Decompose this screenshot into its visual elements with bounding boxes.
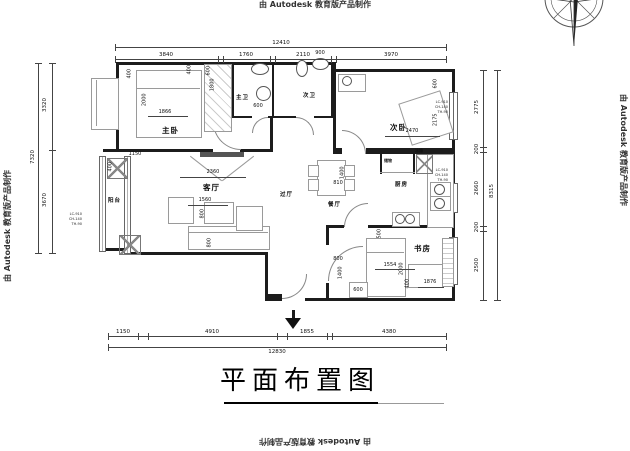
room-label-storage: 储物 bbox=[384, 159, 392, 163]
dimension-label: 3670 bbox=[42, 180, 48, 220]
wall bbox=[103, 149, 213, 152]
interior-dim: 400 bbox=[405, 272, 411, 296]
bookshelf bbox=[442, 238, 454, 287]
interior-dim: 1866 bbox=[153, 110, 177, 116]
room-label-second-bedroom: 次卧 bbox=[390, 124, 407, 132]
dimension-line bbox=[115, 47, 447, 48]
dining-chair bbox=[308, 179, 319, 191]
balcony-window bbox=[99, 156, 106, 252]
wall bbox=[333, 69, 336, 154]
dimension-label: 1855 bbox=[287, 329, 327, 335]
armchair bbox=[236, 206, 263, 231]
dining-chair bbox=[308, 165, 319, 177]
study-bed-pillow-line bbox=[366, 252, 404, 253]
wall bbox=[380, 154, 382, 174]
dim-line bbox=[188, 205, 228, 206]
dim-line bbox=[148, 116, 188, 117]
dim-tick bbox=[115, 44, 116, 51]
dim-tick bbox=[148, 333, 149, 340]
dim-tick bbox=[35, 253, 42, 254]
interior-dim: 2175 bbox=[433, 108, 439, 132]
kitchen-door-arc bbox=[344, 203, 368, 227]
wall bbox=[265, 252, 268, 300]
room-label-master-bath: 主卫 bbox=[236, 96, 249, 102]
master-bath-door-arc bbox=[252, 117, 268, 133]
dim-tick bbox=[49, 63, 56, 64]
dimension-label: 8315 bbox=[489, 171, 495, 211]
kitchen-sink-basin bbox=[434, 184, 445, 195]
bedroom2-bed bbox=[398, 90, 453, 145]
dim-tick bbox=[270, 56, 271, 63]
study-door-arc bbox=[328, 246, 363, 281]
dim-tick bbox=[223, 56, 224, 63]
room-label-kitchen: 厨房 bbox=[395, 183, 408, 189]
dim-tick bbox=[480, 300, 487, 301]
dimension-label: 1150 bbox=[103, 329, 143, 335]
dim-tick bbox=[480, 226, 487, 227]
dim-tick bbox=[446, 56, 447, 63]
dimension-line bbox=[52, 63, 53, 253]
interior-dim: 1800 bbox=[210, 73, 216, 97]
stove-burner bbox=[395, 214, 405, 224]
dim-tick bbox=[327, 333, 328, 340]
kitchen-sink-basin bbox=[434, 198, 445, 209]
washing-machine bbox=[119, 235, 141, 255]
interior-dim: 400 bbox=[127, 62, 133, 86]
master-bath-sink bbox=[256, 86, 271, 101]
interior-dim: 900 bbox=[308, 51, 332, 57]
sofa-line bbox=[188, 232, 268, 233]
dim-tick bbox=[331, 56, 332, 63]
wall bbox=[124, 252, 267, 255]
dimension-label: 1760 bbox=[226, 52, 266, 58]
dim-tick bbox=[446, 344, 447, 351]
dim-line bbox=[180, 177, 246, 178]
room-label-study: 书房 bbox=[414, 245, 431, 253]
watermark-bottom: 由 Autodesk 教育版产品制作 bbox=[0, 437, 630, 445]
dim-tick bbox=[480, 231, 487, 232]
dimension-label: 200 bbox=[474, 129, 480, 169]
dim-tick bbox=[35, 63, 42, 64]
dimension-line bbox=[497, 70, 498, 300]
interior-dim: 1400 bbox=[338, 261, 344, 285]
dimension-label: 4380 bbox=[369, 329, 409, 335]
dimension-label: 3970 bbox=[371, 52, 411, 58]
room-label-dining-room: 餐厅 bbox=[328, 203, 341, 209]
armchair bbox=[168, 197, 194, 224]
dimension-label: 3840 bbox=[146, 52, 186, 58]
dimension-line bbox=[115, 59, 447, 60]
entrance-arrow-icon bbox=[285, 318, 301, 329]
window-code-label: LC-910 CH-140 TH-90 bbox=[430, 168, 448, 183]
dim-tick bbox=[332, 333, 333, 340]
dim-tick bbox=[494, 70, 501, 71]
wall bbox=[240, 149, 272, 152]
interior-dim: 1876 bbox=[418, 280, 442, 286]
wall bbox=[265, 294, 282, 301]
dim-tick bbox=[115, 56, 116, 63]
dimension-label: 2660 bbox=[474, 168, 480, 208]
dim-tick bbox=[275, 56, 276, 63]
drawing-title: 平面布置图 bbox=[0, 368, 600, 394]
dimension-label: 200 bbox=[474, 207, 480, 247]
dim-tick bbox=[336, 56, 337, 63]
interior-dim: 600 bbox=[246, 104, 270, 110]
entry-door-arc bbox=[282, 274, 307, 299]
interior-dim: 400 bbox=[108, 155, 114, 179]
interior-dim: 400 bbox=[187, 58, 193, 82]
dim-line bbox=[418, 287, 444, 288]
wall bbox=[272, 62, 274, 118]
window-code-label: LC-910 CH-140 TH-90 bbox=[64, 212, 82, 227]
dim-tick bbox=[480, 147, 487, 148]
dim-tick bbox=[218, 56, 219, 63]
room-label-balcony: 阳台 bbox=[108, 199, 121, 205]
watermark-right: 由 Autodesk 教育版产品制作 bbox=[619, 55, 627, 245]
dim-tick bbox=[494, 300, 501, 301]
bedroom2-door-arc bbox=[342, 130, 366, 154]
interior-dim: 2360 bbox=[201, 170, 225, 176]
title-underline-light bbox=[378, 403, 444, 404]
interior-dim: 1150 bbox=[123, 152, 147, 158]
interior-dim: 600 bbox=[346, 288, 370, 294]
dimension-label: 12830 bbox=[257, 349, 297, 355]
wall bbox=[232, 62, 234, 118]
compass-rose-icon bbox=[533, 0, 615, 52]
dim-tick bbox=[446, 333, 447, 340]
dimension-label: 2500 bbox=[474, 245, 480, 285]
master-bath-toilet bbox=[251, 63, 269, 75]
dimension-line bbox=[108, 347, 447, 348]
closet-line bbox=[380, 172, 415, 173]
dim-line bbox=[375, 269, 415, 270]
dimension-label: 2775 bbox=[474, 87, 480, 127]
title-underline bbox=[224, 402, 378, 404]
dimension-label: 4910 bbox=[192, 329, 232, 335]
interior-dim: 500 bbox=[377, 222, 383, 246]
room-label-fridge: 冰箱 bbox=[415, 149, 423, 153]
wall bbox=[326, 225, 329, 245]
dimension-line bbox=[38, 63, 39, 253]
interior-dim: 800 bbox=[207, 231, 213, 255]
tv bbox=[200, 152, 244, 157]
dim-line bbox=[385, 136, 440, 137]
bedroom2-desk-chair bbox=[342, 76, 352, 86]
window-code-line: TH-90 bbox=[64, 222, 82, 227]
dim-tick bbox=[49, 150, 56, 151]
dim-tick bbox=[49, 253, 56, 254]
wall bbox=[234, 116, 252, 118]
watermark-left: 由 Autodesk 教育版产品制作 bbox=[4, 141, 12, 311]
interior-dim: 600 bbox=[433, 72, 439, 96]
window-code-line: TH-90 bbox=[430, 178, 448, 183]
wall bbox=[326, 283, 329, 301]
interior-dim: 2000 bbox=[142, 88, 148, 112]
room-label-living-room: 客厅 bbox=[203, 184, 220, 192]
room-label-master-bedroom: 主卧 bbox=[162, 127, 179, 135]
dim-tick bbox=[480, 152, 487, 153]
room-label-hallway: 过厅 bbox=[280, 193, 293, 199]
dim-tick bbox=[446, 44, 447, 51]
dimension-label: 7320 bbox=[30, 137, 36, 177]
bay-window-line bbox=[96, 80, 97, 126]
wall bbox=[333, 148, 342, 154]
stove-burner bbox=[405, 214, 415, 224]
dimension-line bbox=[483, 70, 484, 300]
room-label-second-bath: 次卫 bbox=[303, 94, 316, 100]
second-bath-door-arc bbox=[296, 117, 314, 135]
interior-dim: 810 bbox=[326, 181, 350, 187]
dim-tick bbox=[277, 333, 278, 340]
floorplan-sheet: 由 Autodesk 教育版产品制作 由 Autodesk 教育版产品制作 由 … bbox=[0, 0, 630, 451]
wall bbox=[270, 116, 273, 152]
second-bath-toilet bbox=[296, 60, 308, 77]
wall bbox=[314, 116, 333, 118]
dim-tick bbox=[108, 344, 109, 351]
wall bbox=[413, 154, 415, 174]
dimension-label: 12410 bbox=[261, 40, 301, 46]
dimension-label: 3320 bbox=[42, 85, 48, 125]
dim-tick bbox=[480, 70, 487, 71]
